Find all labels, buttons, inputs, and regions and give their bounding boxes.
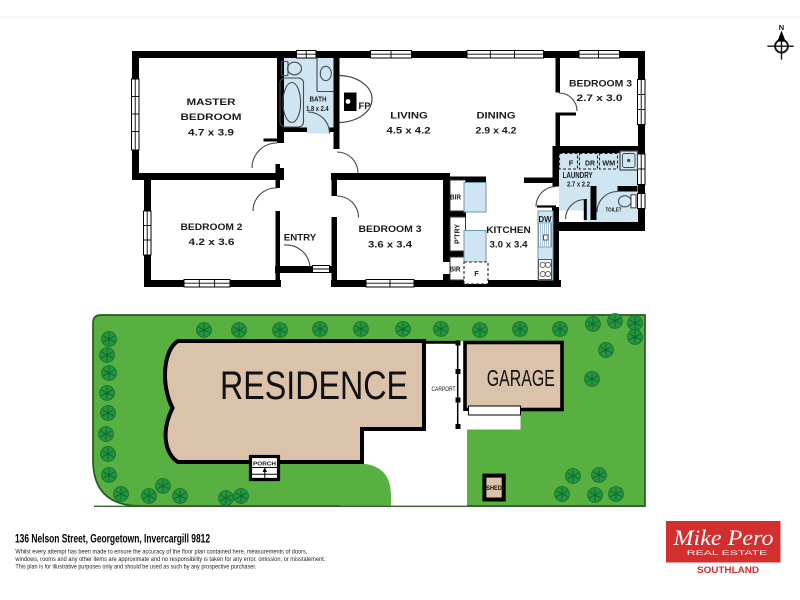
svg-text:DW: DW	[539, 215, 552, 224]
svg-text:LIVING: LIVING	[390, 111, 428, 122]
svg-text:REAL ESTATE: REAL ESTATE	[687, 550, 769, 557]
svg-text:Mike Pero: Mike Pero	[672, 525, 773, 550]
svg-text:Whilst every attempt has been: Whilst every attempt has been made to en…	[15, 548, 307, 555]
svg-text:2.7 x 3.0: 2.7 x 3.0	[577, 93, 623, 104]
svg-text:BEDROOM 2: BEDROOM 2	[181, 222, 243, 233]
svg-text:4.2 x 3.6: 4.2 x 3.6	[189, 237, 235, 248]
svg-text:BEDROOM 3: BEDROOM 3	[359, 224, 422, 235]
svg-text:TOILET: TOILET	[606, 208, 622, 214]
svg-text:SOUTHLAND: SOUTHLAND	[697, 565, 759, 576]
svg-text:F: F	[474, 269, 479, 278]
svg-text:CARPORT: CARPORT	[432, 386, 456, 393]
svg-text:3.0 x 3.4: 3.0 x 3.4	[490, 239, 529, 250]
svg-text:SHED: SHED	[486, 486, 502, 492]
svg-text:KITCHEN: KITCHEN	[486, 225, 531, 236]
svg-text:2.7 x 2.2: 2.7 x 2.2	[567, 180, 590, 189]
svg-text:136 Nelson Street, Georgetown,: 136 Nelson Street, Georgetown, Invercarg…	[15, 534, 210, 546]
svg-text:PORCH: PORCH	[253, 461, 276, 467]
svg-text:windows, rooms and any other i: windows, rooms and any other items are a…	[15, 556, 326, 563]
svg-text:WM: WM	[602, 159, 615, 168]
svg-text:This plan is for illustrative: This plan is for illustrative purposes o…	[15, 564, 256, 571]
svg-text:1.8 x 2.4: 1.8 x 2.4	[306, 106, 329, 113]
svg-text:LAUNDRY: LAUNDRY	[563, 171, 594, 180]
svg-text:P'TRY: P'TRY	[455, 224, 462, 244]
svg-text:2.9 x 4.2: 2.9 x 4.2	[476, 126, 517, 137]
svg-text:DINING: DINING	[477, 111, 516, 122]
svg-text:4.7 x 3.9: 4.7 x 3.9	[188, 128, 234, 139]
svg-text:FP: FP	[359, 101, 372, 112]
svg-text:F: F	[569, 159, 574, 168]
svg-text:BIR: BIR	[450, 267, 461, 274]
svg-text:BATH: BATH	[310, 95, 327, 104]
svg-text:4.5 x 4.2: 4.5 x 4.2	[387, 126, 431, 137]
svg-text:MASTER: MASTER	[187, 97, 236, 108]
svg-text:BEDROOM 3: BEDROOM 3	[569, 79, 632, 90]
svg-text:GARAGE: GARAGE	[487, 365, 555, 391]
svg-text:BIR: BIR	[450, 195, 461, 202]
svg-text:ENTRY: ENTRY	[284, 233, 317, 244]
svg-text:RESIDENCE: RESIDENCE	[220, 364, 408, 408]
svg-text:N: N	[779, 23, 784, 32]
svg-text:BEDROOM: BEDROOM	[181, 112, 242, 123]
svg-text:3.6 x 3.4: 3.6 x 3.4	[368, 239, 413, 250]
svg-text:DR: DR	[585, 159, 596, 168]
